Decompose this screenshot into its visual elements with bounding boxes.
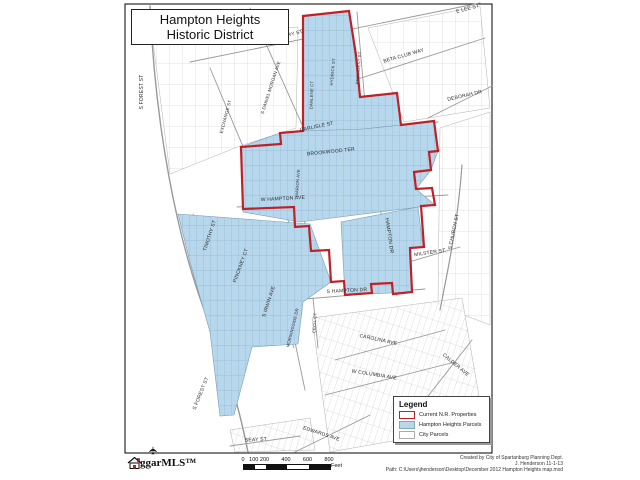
map-title-line2: Historic District xyxy=(132,27,288,42)
mls-logo-text: ggarMLS™ xyxy=(140,457,196,469)
mls-logo: ✈ ggarMLS™ xyxy=(127,444,207,476)
street-label: SEAY ST xyxy=(245,436,267,443)
scale-tick: 400 xyxy=(281,457,290,463)
scale-segment xyxy=(255,465,266,469)
scale-unit-label: Feet xyxy=(331,463,342,469)
scale-segment xyxy=(266,465,288,469)
scale-bar-body xyxy=(243,464,331,470)
scale-tick: 100 xyxy=(249,457,258,463)
legend-title: Legend xyxy=(399,400,485,409)
legend-label: Current N.R. Properties xyxy=(419,412,476,418)
airplane-icon: ✈ xyxy=(147,446,160,455)
legend-swatch-city xyxy=(399,431,415,439)
map-credits: Created by City of Spartanburg Planning … xyxy=(386,455,563,473)
legend-swatch-nr xyxy=(399,411,415,419)
street-label: DARLENE CT xyxy=(309,80,315,109)
scale-tick-labels: 0100200400600800 xyxy=(243,457,329,463)
scale-segment xyxy=(244,465,255,469)
legend-item-nr: Current N.R. Properties xyxy=(399,411,485,419)
legend-items: Current N.R. PropertiesHampton Heights P… xyxy=(399,411,485,439)
legend: Legend Current N.R. PropertiesHampton He… xyxy=(393,396,490,443)
legend-item-hh: Hampton Heights Parcels xyxy=(399,421,485,429)
legend-label: City Parcels xyxy=(419,432,448,438)
credit-line: Path: C:\Users\jhenderson\Desktop\Decemb… xyxy=(386,467,563,473)
map-title-box: Hampton Heights Historic District xyxy=(131,9,289,45)
scale-bar: 0100200400600800 Feet xyxy=(243,457,347,473)
map-title-line1: Hampton Heights xyxy=(132,12,288,27)
scale-segment xyxy=(287,465,309,469)
scale-tick: 600 xyxy=(303,457,312,463)
map-canvas: W HENRY STE LEE STBETA CLUB WAYDEBORAH D… xyxy=(0,0,640,480)
legend-swatch-hh xyxy=(399,421,415,429)
scale-segment xyxy=(309,465,331,469)
scale-tick: 0 xyxy=(241,457,244,463)
scale-tick: 200 xyxy=(260,457,269,463)
street-label: S FOREST ST xyxy=(139,75,145,110)
legend-label: Hampton Heights Parcels xyxy=(419,422,481,428)
legend-item-city: City Parcels xyxy=(399,431,485,439)
